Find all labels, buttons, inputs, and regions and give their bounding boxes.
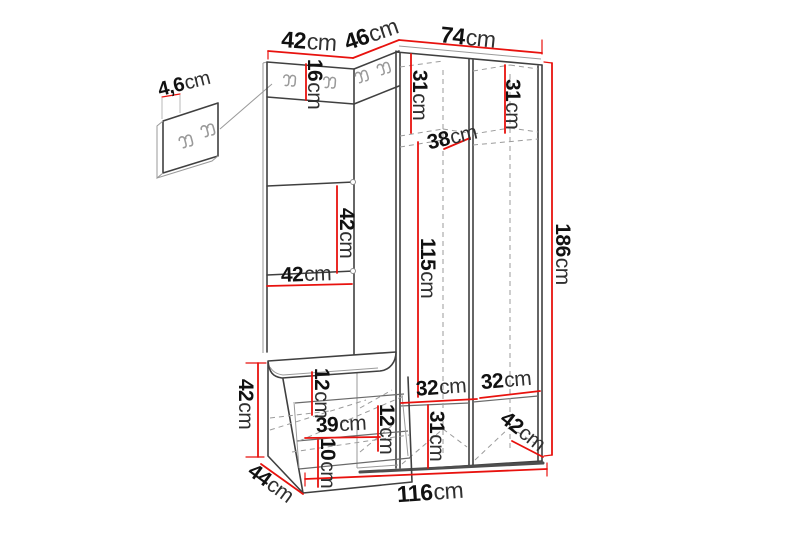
dim-label-total-width: 116cm (396, 477, 464, 508)
dim-label-hanging-height: 115cm (417, 238, 440, 298)
dim-label-panel-section-width: 42cm (280, 262, 331, 287)
dim-label-bottom-shelf-right: 32cm (480, 366, 532, 393)
dim-label-bench-base-height: 10cm (317, 438, 340, 488)
dim-label-bottom-shelf-left: 32cm (415, 374, 467, 400)
seam-node (351, 269, 356, 274)
dim-label-bench-opening-height: 12cm (376, 404, 399, 454)
dim-label-bottom-section-height: 31cm (426, 411, 449, 461)
dim-label-top-left-section: 31cm (409, 70, 432, 120)
dim-label-top-right-section: 31cm (502, 79, 525, 129)
dim-label-bench-top-section: 12cm (311, 368, 334, 418)
seam-node (351, 180, 356, 185)
dim-line-39 (305, 437, 380, 438)
dim-label-panel-section-height: 42cm (336, 208, 359, 258)
dim-label-panel-width-top: 42cm (281, 26, 338, 56)
dim-label-total-height: 186cm (552, 223, 575, 285)
dim-label-bench-height: 42cm (235, 379, 258, 429)
dim-label-bench-opening-width: 39cm (315, 411, 366, 437)
furniture-dimension-diagram: 42cm 46cm 74cm 16cm 4,6cm 31cm 31cm 38cm… (0, 0, 800, 533)
dim-label-hook-strip-height: 16cm (304, 59, 327, 109)
screenshot-canvas: 42cm 46cm 74cm 16cm 4,6cm 31cm 31cm 38cm… (0, 0, 800, 533)
